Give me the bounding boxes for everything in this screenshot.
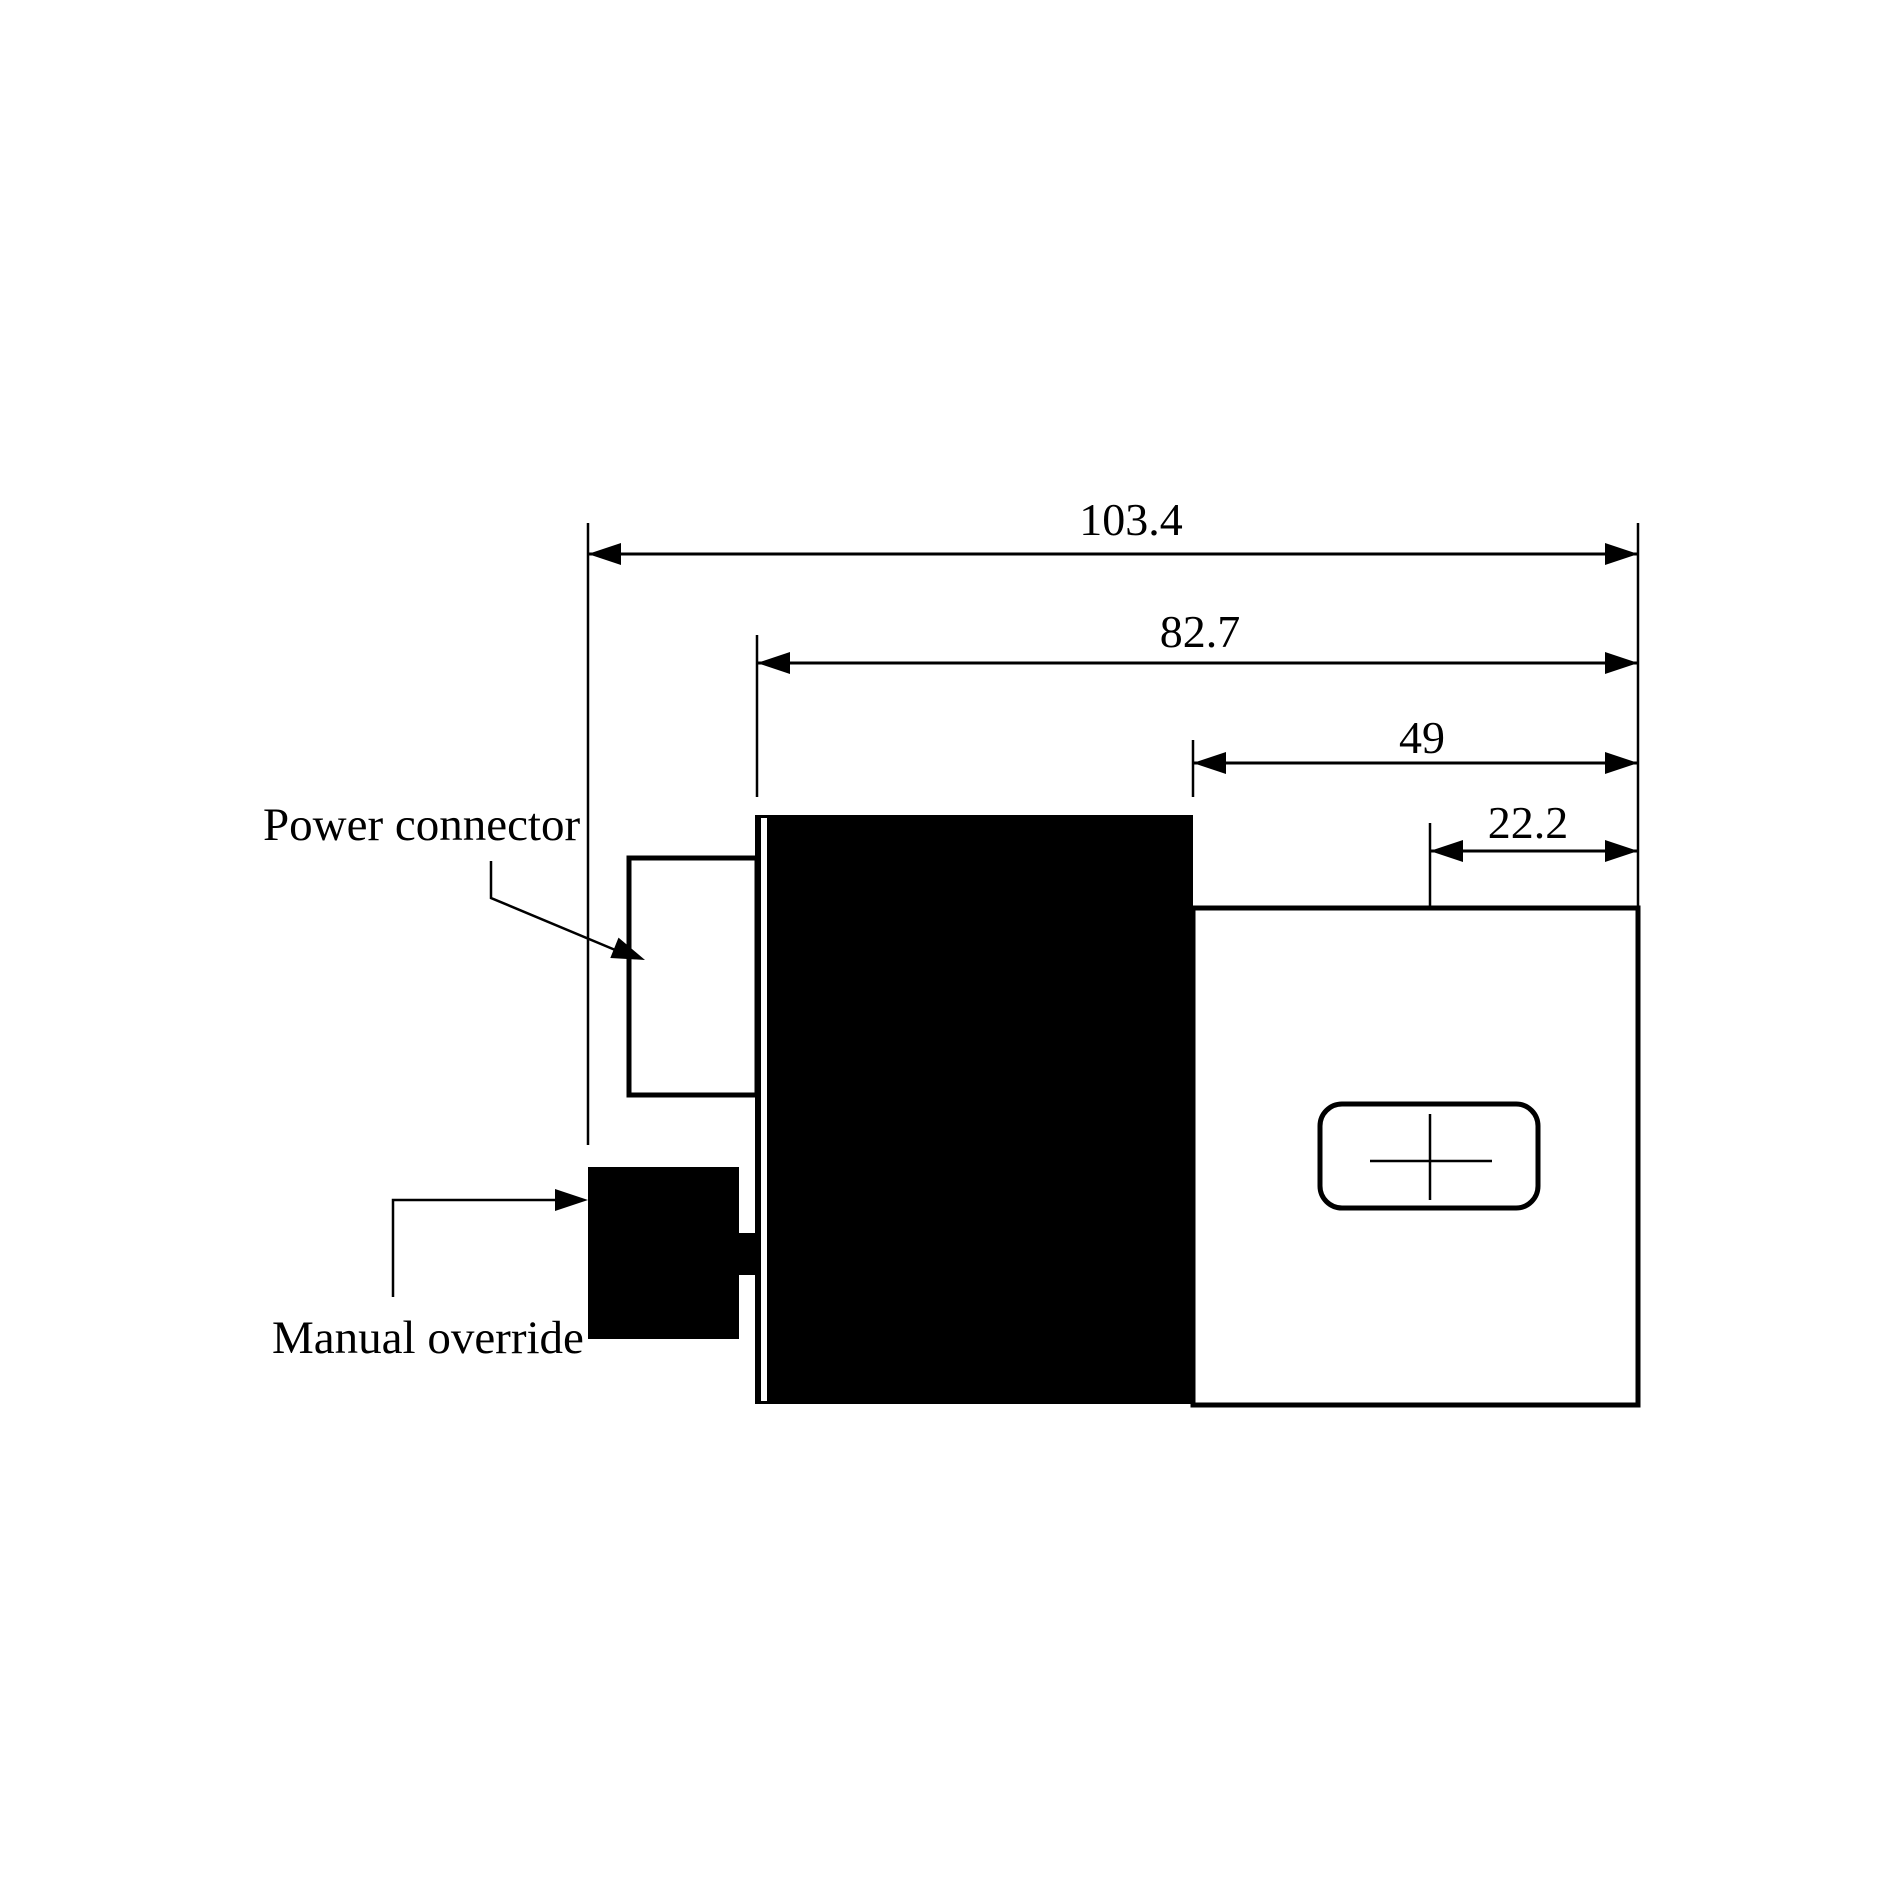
manual-override-stem xyxy=(739,1233,757,1275)
power-connector-label: Power connector xyxy=(263,799,580,851)
coil-plate-gap xyxy=(761,818,767,1401)
technical-drawing-canvas: 103.4 82.7 49 22.2 xyxy=(0,0,1900,1900)
dimension-label-port-offset: 22.2 xyxy=(1488,797,1569,848)
solenoid-coil-block xyxy=(755,815,1193,1404)
dimension-label-overall-length: 103.4 xyxy=(1079,494,1183,545)
manual-override-label: Manual override xyxy=(272,1312,584,1364)
dimension-label-valve-body: 49 xyxy=(1399,712,1445,763)
power-connector-box xyxy=(629,858,757,1095)
solenoid-valve-dimension-drawing: 103.4 82.7 49 22.2 xyxy=(0,0,1900,1900)
dimension-label-coil-assembly: 82.7 xyxy=(1160,606,1241,657)
manual-override-knob xyxy=(588,1167,739,1339)
